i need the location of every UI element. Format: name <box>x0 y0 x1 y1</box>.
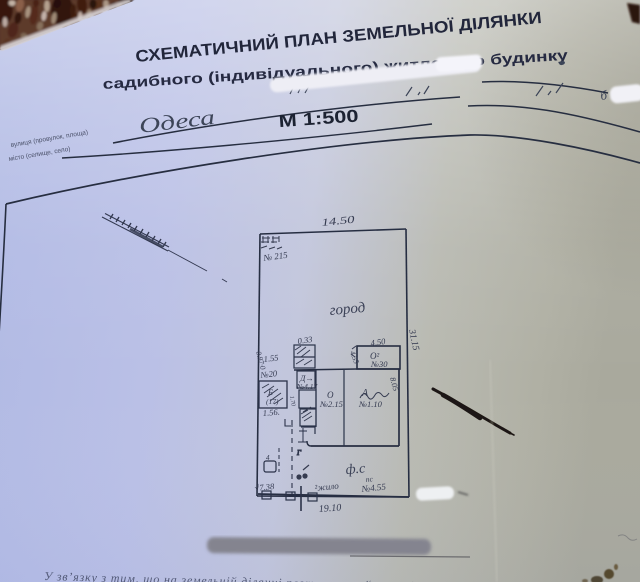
svg-text:√7.38: √7.38 <box>254 481 275 493</box>
svg-text:ф.с: ф.с <box>345 461 367 478</box>
svg-text:19.10: 19.10 <box>318 502 341 515</box>
svg-text:(17): (17) <box>266 397 279 406</box>
svg-text:1.56.: 1.56. <box>262 407 280 418</box>
svg-text:А: А <box>361 388 369 399</box>
svg-text:город: город <box>329 300 366 319</box>
svg-text:1.55: 1.55 <box>263 352 279 364</box>
svg-text:№30: №30 <box>370 359 388 369</box>
svg-text:0.33: 0.33 <box>297 334 313 346</box>
svg-text:№1.10: №1.10 <box>358 399 383 409</box>
svg-text:Б: Б <box>267 387 273 397</box>
svg-text:№2.15: №2.15 <box>319 399 343 409</box>
svg-text:№4.17: №4.17 <box>296 382 317 391</box>
svg-text:4: 4 <box>266 454 270 462</box>
